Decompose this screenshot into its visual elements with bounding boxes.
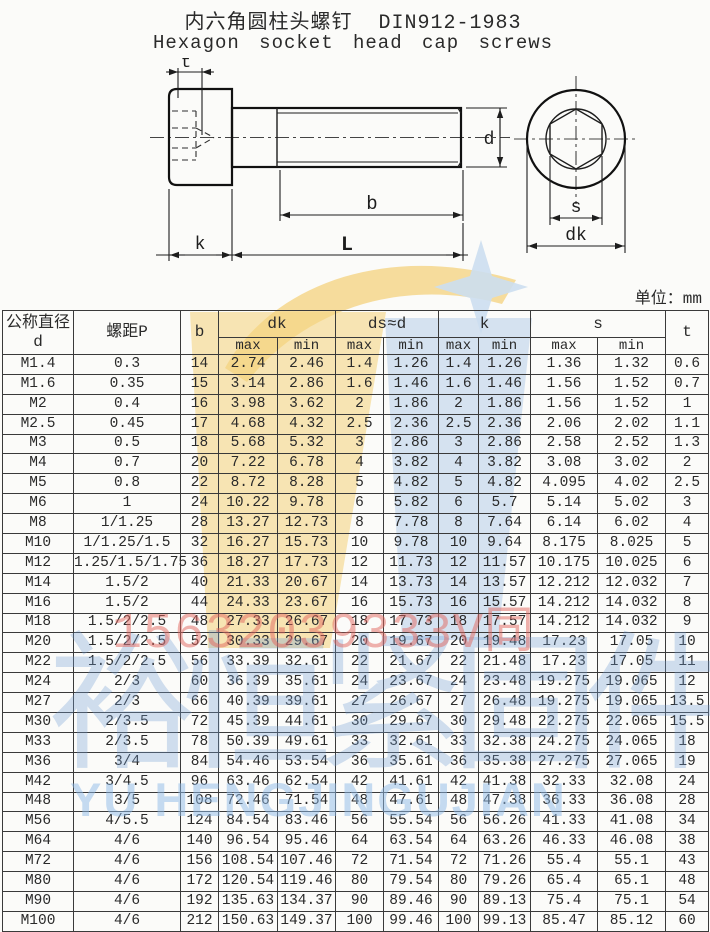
value-cell: 1.86 (384, 394, 439, 414)
table-row: M612410.229.7865.8265.75.145.023 (3, 494, 709, 514)
value-cell: 11.57 (479, 553, 531, 573)
value-cell: 10 (439, 534, 479, 554)
page-title: 内六角圆柱头螺钉 DIN912-1983 (0, 5, 706, 35)
table-row: M30.5185.685.3232.8632.862.582.521.3 (3, 434, 709, 454)
value-cell: 13.73 (384, 573, 439, 593)
size-cell: M5 (3, 474, 74, 494)
value-cell: 4.68 (219, 414, 278, 434)
value-cell: 41.08 (598, 812, 666, 832)
value-cell: 90 (439, 892, 479, 912)
value-cell: 24.33 (219, 593, 278, 613)
value-cell: 48 (666, 872, 709, 892)
value-cell: 42 (439, 772, 479, 792)
value-cell: 42 (336, 772, 384, 792)
value-cell: 71.54 (384, 852, 439, 872)
value-cell: 5.32 (278, 434, 336, 454)
table-row: M483/510872.4671.544847.614847.3836.3336… (3, 792, 709, 812)
value-cell: 29.67 (384, 713, 439, 733)
value-cell: 1.4 (439, 355, 479, 375)
value-cell: 36.08 (598, 792, 666, 812)
value-cell: 17.73 (384, 613, 439, 633)
table-row: M804/6172120.54119.468079.548079.2665.46… (3, 872, 709, 892)
technical-drawing: t d b k L (0, 58, 710, 308)
value-cell: 20.67 (278, 573, 336, 593)
value-cell: 8 (666, 593, 709, 613)
value-cell: 3/4.5 (74, 772, 181, 792)
value-cell: 30.33 (219, 633, 278, 653)
value-cell: 84 (181, 752, 219, 772)
value-cell: 41.33 (531, 812, 598, 832)
value-cell: 1.52 (598, 394, 666, 414)
value-cell: 19.275 (531, 673, 598, 693)
value-cell: 75.1 (598, 892, 666, 912)
table-row: M302/3.57245.3944.613029.673029.4822.275… (3, 713, 709, 733)
value-cell: 1.56 (531, 374, 598, 394)
value-cell: 0.7 (74, 454, 181, 474)
value-cell: 5.14 (531, 494, 598, 514)
value-cell: 4 (439, 454, 479, 474)
value-cell: 27 (439, 693, 479, 713)
value-cell: 2 (336, 394, 384, 414)
value-cell: 20 (336, 633, 384, 653)
spec-table: 公称直径 d 螺距P b dk ds≈d k s t max min max m… (2, 310, 709, 932)
value-cell: 134.37 (278, 892, 336, 912)
value-cell: 0.5 (74, 434, 181, 454)
value-cell: 0.6 (666, 355, 709, 375)
value-cell: 5 (336, 474, 384, 494)
page-subtitle: Hexagon socket head cap screws (0, 32, 706, 54)
value-cell: 3/4 (74, 752, 181, 772)
value-cell: 7.78 (384, 514, 439, 534)
value-cell: 35.61 (384, 752, 439, 772)
value-cell: 18 (181, 434, 219, 454)
value-cell: 7 (666, 573, 709, 593)
table-row: M50.8228.728.2854.8254.824.0954.022.5 (3, 474, 709, 494)
dim-label-s: s (571, 198, 582, 218)
value-cell: 40 (181, 573, 219, 593)
value-cell: 4/6 (74, 892, 181, 912)
dim-label-dk: dk (565, 226, 587, 246)
value-cell: 15.57 (479, 593, 531, 613)
value-cell: 14.032 (598, 593, 666, 613)
value-cell: 12.73 (278, 514, 336, 534)
value-cell: 35.61 (278, 673, 336, 693)
value-cell: 4/6 (74, 832, 181, 852)
value-cell: 150.63 (219, 911, 278, 931)
value-cell: 33 (439, 732, 479, 752)
dim-label-b: b (366, 193, 377, 215)
value-cell: 10.025 (598, 553, 666, 573)
value-cell: 89.46 (384, 892, 439, 912)
value-cell: 55.54 (384, 812, 439, 832)
value-cell: 14.212 (531, 613, 598, 633)
value-cell: 0.35 (74, 374, 181, 394)
value-cell: 2 (439, 394, 479, 414)
header-s: s (531, 311, 666, 338)
value-cell: 10 (336, 534, 384, 554)
value-cell: 56 (181, 653, 219, 673)
value-cell: 24 (181, 494, 219, 514)
value-cell: 1.26 (384, 355, 439, 375)
value-cell: 21.67 (384, 653, 439, 673)
value-cell: 5.7 (479, 494, 531, 514)
value-cell: 45.39 (219, 713, 278, 733)
value-cell: 1.3 (666, 434, 709, 454)
value-cell: 26.67 (278, 613, 336, 633)
value-cell: 32.33 (531, 772, 598, 792)
size-cell: M18 (3, 613, 74, 633)
value-cell: 49.61 (278, 732, 336, 752)
value-cell: 18 (336, 613, 384, 633)
size-cell: M56 (3, 812, 74, 832)
value-cell: 27.33 (219, 613, 278, 633)
value-cell: 71.26 (479, 852, 531, 872)
value-cell: 8 (439, 514, 479, 534)
value-cell: 2.5 (666, 474, 709, 494)
value-cell: 1.86 (479, 394, 531, 414)
value-cell: 83.46 (278, 812, 336, 832)
value-cell: 55.4 (531, 852, 598, 872)
size-cell: M14 (3, 573, 74, 593)
value-cell: 14.212 (531, 593, 598, 613)
size-cell: M2 (3, 394, 74, 414)
value-cell: 1.26 (479, 355, 531, 375)
dim-label-L: L (341, 234, 353, 257)
value-cell: 38 (666, 832, 709, 852)
value-cell: 85.47 (531, 911, 598, 931)
value-cell: 119.46 (278, 872, 336, 892)
header-nominal-diameter: 公称直径 d (3, 311, 74, 355)
value-cell: 10 (666, 633, 709, 653)
size-cell: M1.6 (3, 374, 74, 394)
header-b: b (181, 311, 219, 355)
value-cell: 9.64 (479, 534, 531, 554)
value-cell: 1 (666, 394, 709, 414)
value-cell: 1.36 (531, 355, 598, 375)
value-cell: 120.54 (219, 872, 278, 892)
value-cell: 0.3 (74, 355, 181, 375)
value-cell: 66 (181, 693, 219, 713)
value-cell: 17.57 (479, 613, 531, 633)
value-cell: 56 (336, 812, 384, 832)
header-k: k (439, 311, 531, 338)
value-cell: 18 (439, 613, 479, 633)
value-cell: 36 (336, 752, 384, 772)
value-cell: 172 (181, 872, 219, 892)
value-cell: 99.13 (479, 911, 531, 931)
value-cell: 43 (666, 852, 709, 872)
value-cell: 23.48 (479, 673, 531, 693)
value-cell: 3.08 (531, 454, 598, 474)
value-cell: 6 (666, 553, 709, 573)
side-view: t d b k L (150, 58, 510, 261)
value-cell: 63.26 (479, 832, 531, 852)
value-cell: 64 (439, 832, 479, 852)
value-cell: 50.39 (219, 732, 278, 752)
value-cell: 1.5/2/2.5 (74, 653, 181, 673)
table-row: M423/4.59663.4662.544241.614241.3832.333… (3, 772, 709, 792)
value-cell: 17.23 (531, 653, 598, 673)
value-cell: 4.82 (384, 474, 439, 494)
value-cell: 28 (666, 792, 709, 812)
value-cell: 13.57 (479, 573, 531, 593)
size-cell: M48 (3, 792, 74, 812)
value-cell: 8 (336, 514, 384, 534)
value-cell: 100 (439, 911, 479, 931)
table-row: M201.5/2/2.55230.3329.672019.672019.4817… (3, 633, 709, 653)
value-cell: 1.1 (666, 414, 709, 434)
value-cell: 27.065 (598, 752, 666, 772)
size-cell: M27 (3, 693, 74, 713)
value-cell: 22.275 (531, 713, 598, 733)
value-cell: 108.54 (219, 852, 278, 872)
table-row: M272/36640.3939.612726.672726.4819.27519… (3, 693, 709, 713)
value-cell: 1/1.25 (74, 514, 181, 534)
value-cell: 53.54 (278, 752, 336, 772)
value-cell: 60 (666, 911, 709, 931)
value-cell: 22 (336, 653, 384, 673)
value-cell: 27 (336, 693, 384, 713)
value-cell: 3.82 (384, 454, 439, 474)
value-cell: 2/3 (74, 673, 181, 693)
value-cell: 21.48 (479, 653, 531, 673)
header-dk-min: min (278, 338, 336, 355)
value-cell: 47.38 (479, 792, 531, 812)
value-cell: 16.27 (219, 534, 278, 554)
size-cell: M80 (3, 872, 74, 892)
value-cell: 2/3.5 (74, 732, 181, 752)
value-cell: 6.78 (278, 454, 336, 474)
header-k-min: min (479, 338, 531, 355)
table-body: M1.40.3142.742.461.41.261.41.261.361.320… (3, 355, 709, 932)
value-cell: 7.64 (479, 514, 531, 534)
value-cell: 19.065 (598, 693, 666, 713)
value-cell: 22 (439, 653, 479, 673)
value-cell: 5.68 (219, 434, 278, 454)
value-cell: 89.13 (479, 892, 531, 912)
value-cell: 79.26 (479, 872, 531, 892)
header-pitch: 螺距P (74, 311, 181, 355)
table-row: M181.5/2/2.54827.3326.671817.731817.5714… (3, 613, 709, 633)
value-cell: 17.73 (278, 553, 336, 573)
value-cell: 10.22 (219, 494, 278, 514)
value-cell: 12.032 (598, 573, 666, 593)
value-cell: 1/1.25/1.5 (74, 534, 181, 554)
value-cell: 140 (181, 832, 219, 852)
value-cell: 4/5.5 (74, 812, 181, 832)
value-cell: 12 (336, 553, 384, 573)
value-cell: 3 (666, 494, 709, 514)
value-cell: 85.12 (598, 911, 666, 931)
value-cell: 48 (181, 613, 219, 633)
value-cell: 55.1 (598, 852, 666, 872)
size-cell: M64 (3, 832, 74, 852)
value-cell: 2.86 (278, 374, 336, 394)
value-cell: 5.02 (598, 494, 666, 514)
value-cell: 4/6 (74, 911, 181, 931)
value-cell: 2.58 (531, 434, 598, 454)
value-cell: 44.61 (278, 713, 336, 733)
value-cell: 16 (181, 394, 219, 414)
dim-label-t: t (181, 58, 191, 73)
value-cell: 30 (439, 713, 479, 733)
size-cell: M42 (3, 772, 74, 792)
value-cell: 78 (181, 732, 219, 752)
value-cell: 56 (439, 812, 479, 832)
value-cell: 46.33 (531, 832, 598, 852)
end-view: s dk (514, 76, 638, 253)
value-cell: 4.32 (278, 414, 336, 434)
value-cell: 2.86 (479, 434, 531, 454)
value-cell: 32.61 (278, 653, 336, 673)
value-cell: 1.52 (598, 374, 666, 394)
size-cell: M36 (3, 752, 74, 772)
header-ds-max: max (336, 338, 384, 355)
size-cell: M30 (3, 713, 74, 733)
size-cell: M33 (3, 732, 74, 752)
value-cell: 4/6 (74, 872, 181, 892)
value-cell: 20 (181, 454, 219, 474)
value-cell: 3.02 (598, 454, 666, 474)
value-cell: 17.05 (598, 653, 666, 673)
value-cell: 32.08 (598, 772, 666, 792)
value-cell: 6 (439, 494, 479, 514)
value-cell: 0.45 (74, 414, 181, 434)
value-cell: 48 (336, 792, 384, 812)
table-row: M1.60.35153.142.861.61.461.61.461.561.52… (3, 374, 709, 394)
value-cell: 47.61 (384, 792, 439, 812)
size-cell: M2.5 (3, 414, 74, 434)
table-row: M363/48454.4653.543635.613635.3827.27527… (3, 752, 709, 772)
value-cell: 124 (181, 812, 219, 832)
value-cell: 22 (181, 474, 219, 494)
value-cell: 32.61 (384, 732, 439, 752)
value-cell: 20 (439, 633, 479, 653)
value-cell: 156 (181, 852, 219, 872)
value-cell: 19.48 (479, 633, 531, 653)
value-cell: 15.73 (384, 593, 439, 613)
value-cell: 40.39 (219, 693, 278, 713)
size-cell: M100 (3, 911, 74, 931)
table-row: M101/1.25/1.53216.2715.73109.78109.648.1… (3, 534, 709, 554)
table-row: M161.5/24424.3323.671615.731615.5714.212… (3, 593, 709, 613)
header-s-min: min (598, 338, 666, 355)
value-cell: 192 (181, 892, 219, 912)
value-cell: 3.62 (278, 394, 336, 414)
value-cell: 2.5 (439, 414, 479, 434)
table-row: M2.50.45174.684.322.52.362.52.362.062.02… (3, 414, 709, 434)
value-cell: 2/3 (74, 693, 181, 713)
value-cell: 44 (181, 593, 219, 613)
size-cell: M3 (3, 434, 74, 454)
size-cell: M6 (3, 494, 74, 514)
size-cell: M16 (3, 593, 74, 613)
value-cell: 54.46 (219, 752, 278, 772)
value-cell: 2.5 (336, 414, 384, 434)
table-row: M724/6156108.54107.467271.547271.2655.45… (3, 852, 709, 872)
value-cell: 1.5/2/2.5 (74, 633, 181, 653)
value-cell: 135.63 (219, 892, 278, 912)
value-cell: 17 (181, 414, 219, 434)
value-cell: 1.6 (336, 374, 384, 394)
value-cell: 99.46 (384, 911, 439, 931)
value-cell: 15.5 (666, 713, 709, 733)
value-cell: 0.4 (74, 394, 181, 414)
value-cell: 33 (336, 732, 384, 752)
value-cell: 5 (439, 474, 479, 494)
value-cell: 107.46 (278, 852, 336, 872)
table-row: M332/3.57850.3949.613332.613332.3824.275… (3, 732, 709, 752)
value-cell: 63.46 (219, 772, 278, 792)
value-cell: 2.06 (531, 414, 598, 434)
value-cell: 19.065 (598, 673, 666, 693)
size-cell: M90 (3, 892, 74, 912)
value-cell: 6 (336, 494, 384, 514)
dim-label-d: d (484, 130, 495, 150)
value-cell: 15 (181, 374, 219, 394)
value-cell: 36.33 (531, 792, 598, 812)
value-cell: 29.67 (278, 633, 336, 653)
value-cell: 0.7 (666, 374, 709, 394)
value-cell: 9.78 (384, 534, 439, 554)
size-cell: M72 (3, 852, 74, 872)
header-s-max: max (531, 338, 598, 355)
value-cell: 9.78 (278, 494, 336, 514)
value-cell: 6.14 (531, 514, 598, 534)
value-cell: 14 (336, 573, 384, 593)
size-cell: M24 (3, 673, 74, 693)
table-row: M121.25/1.5/1.753618.2717.731211.731211.… (3, 553, 709, 573)
table-row: M40.7207.226.7843.8243.823.083.022 (3, 454, 709, 474)
value-cell: 24 (666, 772, 709, 792)
value-cell: 8.28 (278, 474, 336, 494)
value-cell: 7.22 (219, 454, 278, 474)
value-cell: 32.38 (479, 732, 531, 752)
value-cell: 1.5/2 (74, 593, 181, 613)
value-cell: 36.39 (219, 673, 278, 693)
value-cell: 65.4 (531, 872, 598, 892)
value-cell: 23.67 (384, 673, 439, 693)
value-cell: 71.54 (278, 792, 336, 812)
value-cell: 16 (439, 593, 479, 613)
value-cell: 19.275 (531, 693, 598, 713)
value-cell: 8.72 (219, 474, 278, 494)
value-cell: 62.54 (278, 772, 336, 792)
header-nominal-diameter-cn: 公称直径 (3, 314, 73, 332)
value-cell: 9 (666, 613, 709, 633)
value-cell: 2/3.5 (74, 713, 181, 733)
table-row: M1004/6212150.63149.3710099.4610099.1385… (3, 911, 709, 931)
table-row: M141.5/24021.3320.671413.731413.5712.212… (3, 573, 709, 593)
unit-note: 单位：mm (635, 284, 702, 308)
size-cell: M4 (3, 454, 74, 474)
header-nominal-diameter-symbol: d (3, 333, 73, 351)
value-cell: 27.275 (531, 752, 598, 772)
value-cell: 52 (181, 633, 219, 653)
size-cell: M12 (3, 553, 74, 573)
value-cell: 72 (439, 852, 479, 872)
table-row: M20.4163.983.6221.8621.861.561.521 (3, 394, 709, 414)
value-cell: 4/6 (74, 852, 181, 872)
value-cell: 75.4 (531, 892, 598, 912)
value-cell: 2.36 (479, 414, 531, 434)
size-cell: M10 (3, 534, 74, 554)
value-cell: 13.5 (666, 693, 709, 713)
value-cell: 2.74 (219, 355, 278, 375)
value-cell: 16 (336, 593, 384, 613)
value-cell: 1.25/1.5/1.75 (74, 553, 181, 573)
value-cell: 1.6 (439, 374, 479, 394)
